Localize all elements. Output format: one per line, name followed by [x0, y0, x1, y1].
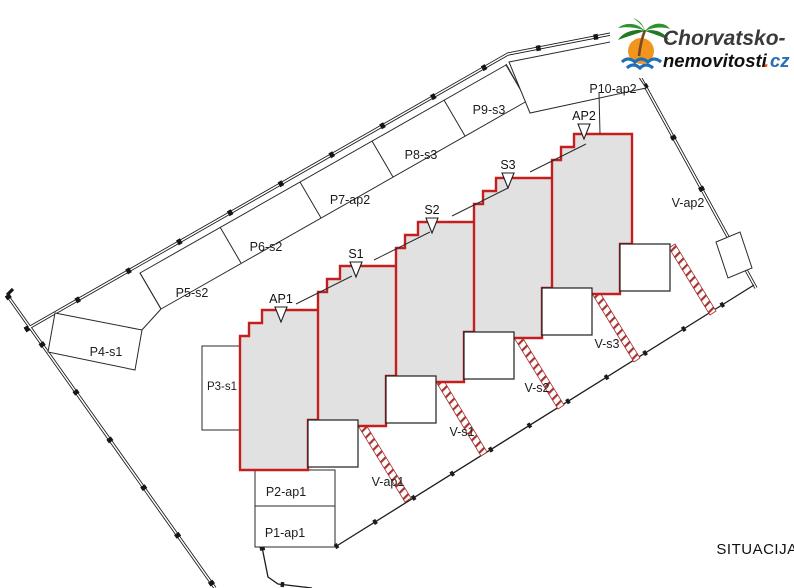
parking-stall-label: P6-s2: [250, 240, 283, 254]
garden-label: V-ap1: [372, 475, 405, 489]
logo-brand-line2: nemovitosti: [663, 50, 768, 71]
parking-stall-label: P3-s1: [207, 381, 237, 393]
parking-stall-label: P9-s3: [473, 103, 506, 117]
garden-label: V-s3: [594, 337, 619, 351]
parking-stall-label: P10-ap2: [589, 82, 636, 96]
unit-marker-label: AP1: [269, 292, 293, 306]
parking-stall-label: P4-s1: [90, 345, 123, 359]
logo-brand-tld: cz: [770, 50, 790, 71]
site-plan-svg: P5-s2 P6-s2 P7-ap2 P8-s3 P9-s3 P10-ap2 P…: [0, 0, 794, 588]
garden-label: V-ap2: [672, 196, 705, 210]
terrace: [308, 420, 358, 467]
parking-west-spot: P4-s1: [48, 313, 142, 370]
unit-marker-label: AP2: [572, 109, 596, 123]
parking-stall-label: P8-s3: [405, 148, 438, 162]
terrace: [464, 332, 514, 379]
terrace: [620, 244, 670, 291]
parking-stall-label: P1-ap1: [265, 526, 305, 540]
terrace: [542, 288, 592, 335]
terrace: [386, 376, 436, 423]
garden-label: V-s2: [524, 381, 549, 395]
logo-brand-dot: .: [764, 50, 769, 71]
logo[interactable]: Chorvatsko- nemovitosti . cz: [610, 16, 794, 78]
unit-marker-label: S2: [424, 203, 439, 217]
logo-brand-line1: Chorvatsko-: [663, 27, 786, 50]
unit-marker-label: S3: [500, 158, 515, 172]
parking-stall-label: P2-ap1: [266, 485, 306, 499]
site-plan-page: P5-s2 P6-s2 P7-ap2 P8-s3 P9-s3 P10-ap2 P…: [0, 0, 794, 588]
parking-stall-label: P7-ap2: [330, 193, 370, 207]
parking-stall-label: P5-s2: [176, 286, 209, 300]
garden-label: V-s1: [449, 425, 474, 439]
parking-bottom-spots: P2-ap1 P1-ap1: [255, 470, 335, 547]
parking-side-spot: P3-s1: [202, 346, 240, 430]
unit-marker-label: S1: [348, 247, 363, 261]
plan-title: SITUACIJA: [716, 541, 794, 558]
